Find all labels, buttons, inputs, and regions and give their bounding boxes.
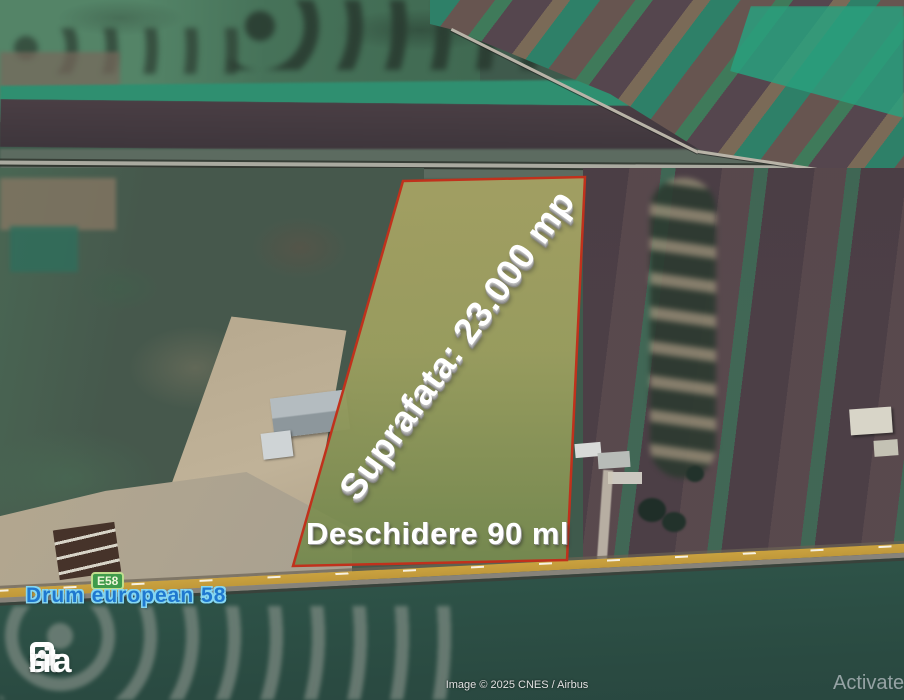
- activate-watermark: Activate: [833, 672, 904, 695]
- storia-logo-suffix: ria: [28, 642, 73, 681]
- satellite-map-image: Suprafata: 23.000 mp Deschidere 90 ml E5…: [0, 0, 904, 700]
- imagery-attribution: Image © 2025 CNES / Airbus: [402, 679, 632, 691]
- road-name-label: Drum european 58: [26, 584, 226, 608]
- plot-frontage-label: Deschidere 90 ml: [306, 516, 569, 552]
